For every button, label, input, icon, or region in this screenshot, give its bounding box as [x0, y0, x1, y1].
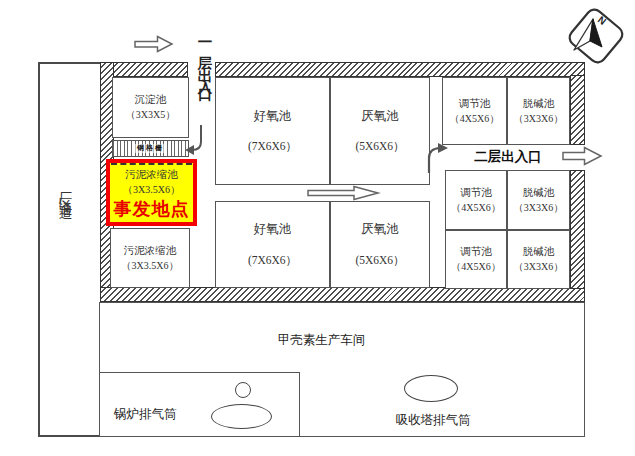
tank-settling-size: （3X3X5） [126, 109, 175, 122]
absorber-stack-label: 吸收塔排气筒 [378, 412, 488, 429]
tank-regulating3-name: 调节池 [460, 245, 492, 258]
tank-dealkali-1: 脱碱池 （3X3X6） [507, 77, 570, 145]
compass-north-letter: N [596, 14, 608, 27]
absorber-stack-ellipse [404, 375, 458, 402]
tank-aerobic1-name: 好氧池 [254, 109, 292, 125]
incident-location-label: 事发地点 [114, 200, 190, 219]
tank-anaerobic1-size: (5X6X6） [355, 139, 404, 153]
tank-anaerobic-2: 厌氧池 (5X6X6） [330, 201, 430, 288]
hatched-wall-bottom [100, 287, 585, 302]
steel-grating: 钢格栅 [112, 140, 189, 157]
tank-dealkali-3: 脱碱池 （3X3X6） [507, 230, 570, 289]
tank-sludge-incident-name: 污泥浓缩池 [125, 168, 178, 181]
tank-dealkali3-name: 脱碱池 [523, 245, 555, 258]
boiler-stack-ellipse [211, 404, 272, 429]
boiler-stack-box [99, 372, 300, 437]
tank-anaerobic2-size: (5X6X6） [355, 253, 404, 267]
tank-aerobic2-size: (7X6X6） [248, 253, 297, 267]
tank-aerobic-1: 好氧池 (7X6X6） [215, 77, 330, 185]
tank-regulating1-size: （4X5X6） [450, 113, 499, 126]
factory-corridor-label: 厂区通道 [56, 181, 74, 201]
tank-regulating-1: 调节池 （4X5X6） [442, 77, 507, 145]
tank-regulating2-size: （4X5X6） [451, 202, 500, 215]
tank-settling-name: 沉淀池 [135, 93, 167, 106]
hatched-wall-right-lower [570, 170, 585, 289]
tank-dealkali1-size: （3X3X6） [514, 113, 563, 126]
tank-sludge-incident-size: （3X3.5X6） [123, 184, 180, 197]
middle-flow-arrow-icon [308, 187, 378, 200]
tank-settling: 沉淀池 （3X3X5） [112, 77, 189, 138]
tank-aerobic2-name: 好氧池 [254, 222, 292, 238]
tank-regulating3-size: （4X5X6） [451, 261, 500, 274]
boiler-stack-small-circle [235, 382, 251, 398]
tank-aerobic-2: 好氧池 (7X6X6） [215, 201, 330, 288]
tank-dealkali2-size: （3X3X6） [514, 202, 563, 215]
tank-anaerobic1-name: 厌氧池 [361, 109, 399, 125]
tank-sludge-thickening-2: 污泥浓缩池 （3X3.5X6） [110, 228, 190, 288]
boiler-stack-label: 锅炉排气筒 [114, 406, 177, 423]
second-floor-entrance-label: 二层出入口 [458, 148, 558, 166]
top-flow-arrow-icon [135, 37, 172, 52]
tank-dealkali3-size: （3X3X6） [514, 261, 563, 274]
tank-dealkali1-name: 脱碱池 [523, 97, 555, 110]
plant-boundary-left [38, 62, 40, 437]
tank-dealkali-2: 脱碱池 （3X3X6） [507, 170, 570, 230]
first-floor-entrance-label: 一层出入口 [196, 34, 214, 89]
tank-aerobic1-size: (7X6X6） [248, 139, 297, 153]
tank-sludge2-size: （3X3.5X6） [122, 260, 179, 273]
tank-anaerobic2-name: 厌氧池 [361, 222, 399, 238]
second-floor-curved-arrow-icon [429, 143, 448, 173]
plant-boundary-top-segment [38, 62, 102, 64]
tank-sludge-thickening-incident: 污泥浓缩池 （3X3.5X6） 事发地点 [106, 159, 197, 226]
tank-regulating-3: 调节池 （4X5X6） [445, 230, 507, 289]
workshop-label: 甲壳素生产车间 [99, 332, 544, 349]
second-floor-exit-arrow-icon [563, 148, 601, 165]
compass-north-icon: N [566, 6, 625, 65]
factory-site-plan: 厂区通道 沉淀池 （3X3X5） 钢格栅 污泥浓缩池 （3X3.5X6） 事发地… [0, 0, 635, 456]
tank-anaerobic-1: 厌氧池 (5X6X6） [330, 77, 430, 185]
hatched-wall-right-upper [570, 75, 585, 145]
tank-dealkali2-name: 脱碱池 [523, 186, 555, 199]
tank-regulating2-name: 调节池 [460, 186, 492, 199]
hatched-wall-top-right [215, 62, 585, 77]
tank-regulating-2: 调节池 （4X5X6） [445, 170, 507, 230]
tank-dashed-edge [111, 163, 192, 165]
tank-sludge2-name: 污泥浓缩池 [124, 244, 177, 257]
steel-grating-label: 钢格栅 [135, 144, 166, 153]
tank-regulating1-name: 调节池 [459, 97, 491, 110]
